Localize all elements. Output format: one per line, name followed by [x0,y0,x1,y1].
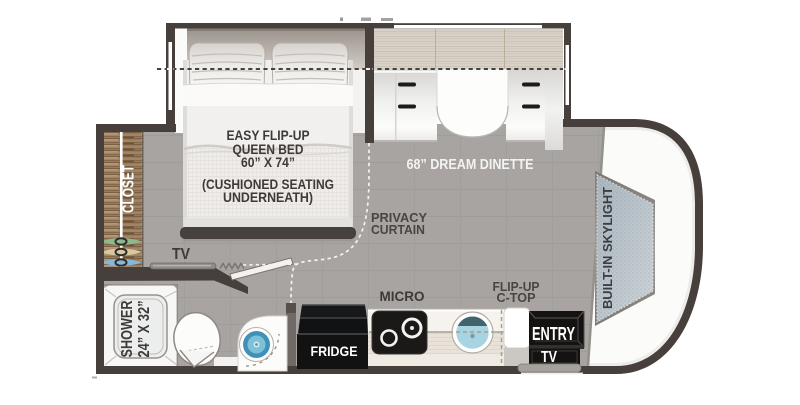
svg-text:24” X 32”: 24” X 32” [136,301,153,358]
svg-text:C-TOP: C-TOP [497,290,536,305]
svg-text:FRIDGE: FRIDGE [311,343,358,359]
svg-text:TV: TV [541,349,557,366]
svg-text:ENTRY: ENTRY [532,324,575,344]
svg-text:CLOSET: CLOSET [121,165,138,213]
svg-text:CURTAIN: CURTAIN [371,222,425,237]
svg-text:68” DREAM DINETTE: 68” DREAM DINETTE [407,156,534,173]
svg-text:SHOWER: SHOWER [119,300,136,357]
svg-text:BUILT-IN SKYLIGHT: BUILT-IN SKYLIGHT [601,187,615,309]
svg-text:TV: TV [172,246,190,263]
svg-text:MICRO: MICRO [380,288,425,304]
svg-text:UNDERNEATH): UNDERNEATH) [223,189,313,205]
svg-text:60” X 74”: 60” X 74” [241,154,295,170]
